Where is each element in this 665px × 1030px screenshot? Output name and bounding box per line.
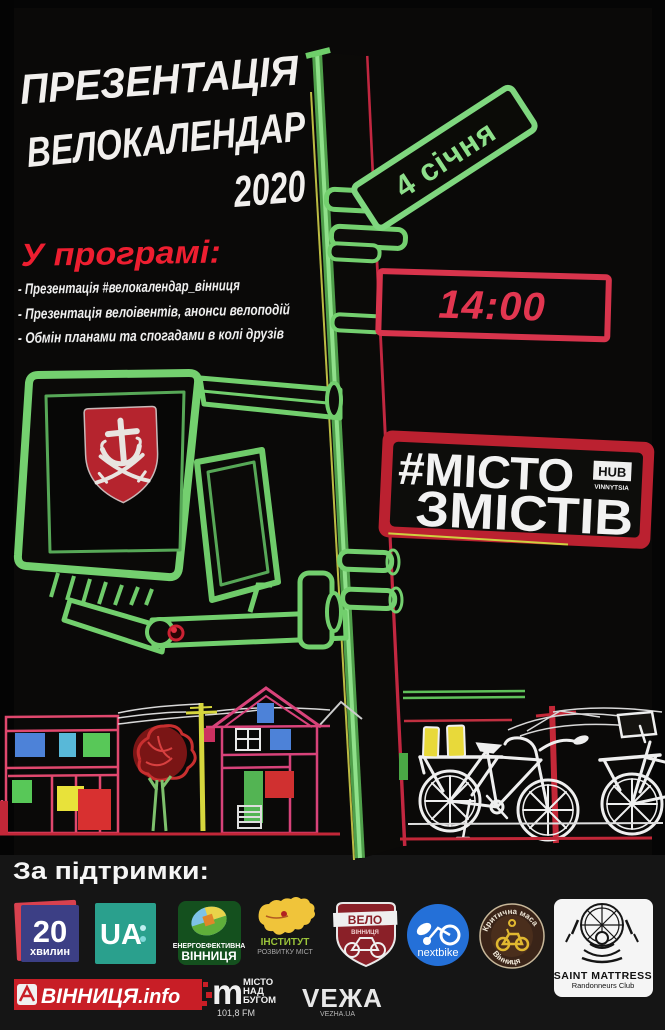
svg-text:m: m bbox=[212, 973, 243, 1012]
svg-text:хвилин: хвилин bbox=[30, 946, 70, 958]
svg-text:VEЖA: VEЖA bbox=[302, 983, 383, 1013]
svg-text:ВЕЛО: ВЕЛО bbox=[348, 913, 382, 927]
svg-text:У програмі:: У програмі: bbox=[20, 234, 221, 273]
svg-text:ІНСТИТУТ: ІНСТИТУТ bbox=[261, 937, 310, 948]
svg-text:.info: .info bbox=[138, 986, 180, 1008]
svg-text:ВІННИЦЯ: ВІННИЦЯ bbox=[351, 930, 379, 936]
svg-text:nextbike: nextbike bbox=[418, 947, 459, 959]
svg-text:101,8 FM: 101,8 FM bbox=[217, 1008, 255, 1018]
svg-text:14:00: 14:00 bbox=[438, 283, 546, 330]
svg-text:UA: UA bbox=[100, 919, 142, 951]
svg-text:VEZHA.UA: VEZHA.UA bbox=[320, 1011, 355, 1018]
svg-text:БУГОМ: БУГОМ bbox=[243, 995, 276, 1006]
svg-text:2020: 2020 bbox=[231, 162, 308, 217]
svg-text:ВІННИЦЯ: ВІННИЦЯ bbox=[181, 949, 236, 963]
svg-text:Randonneurs Club: Randonneurs Club bbox=[572, 981, 635, 990]
svg-text:20: 20 bbox=[33, 914, 67, 949]
svg-text:За підтримки:: За підтримки: bbox=[13, 858, 209, 885]
svg-text:РОЗВИТКУ МІСТ: РОЗВИТКУ МІСТ bbox=[257, 949, 313, 956]
svg-text:HUB: HUB bbox=[598, 464, 627, 480]
svg-text:ВІННИЦЯ: ВІННИЦЯ bbox=[41, 985, 139, 1008]
